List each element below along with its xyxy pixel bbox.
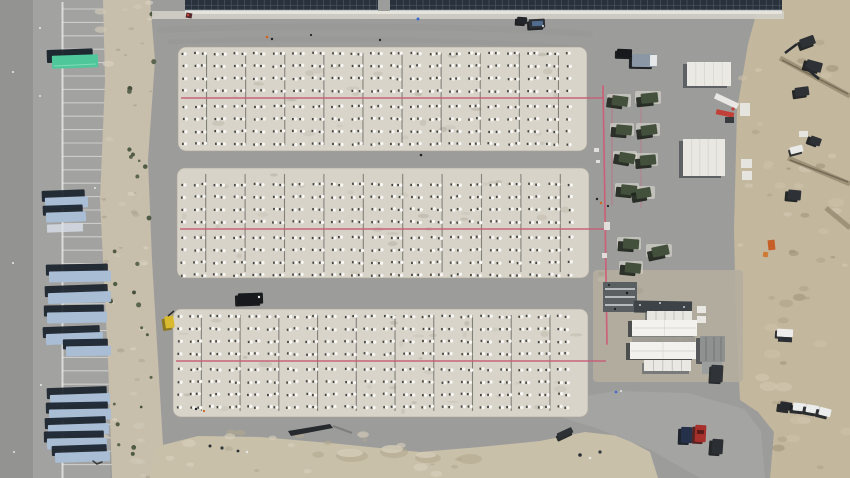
foundation-pad-row-2-pier — [361, 195, 364, 198]
foundation-pad-row-2-pier — [497, 220, 500, 223]
foundation-pad-row-1-pier — [419, 105, 422, 108]
foundation-pad-row-2-pier — [183, 248, 186, 251]
foundation-pad-row-1-pier — [294, 117, 297, 120]
foundation-pad-row-3-pier — [353, 392, 356, 395]
foundation-pad-row-2-pier — [183, 220, 186, 223]
foundation-pad-row-3-pier — [392, 380, 395, 383]
yellow-forklift — [164, 315, 175, 328]
foundation-pad-row-1-pier — [313, 129, 316, 132]
foundation-pad-row-1-pier — [509, 52, 512, 55]
foundation-pad-row-2-pier — [261, 273, 264, 276]
foundation-pad-row-1-pier — [340, 118, 343, 121]
foundation-pad-row-3-pier — [521, 328, 524, 331]
foundation-pad-row-1-pier — [489, 105, 492, 108]
right-dirt-light — [828, 198, 844, 207]
foundation-pad-row-3-pier — [412, 393, 415, 396]
right-dirt-dark — [789, 250, 796, 254]
right-dirt-dark — [817, 465, 824, 469]
foundation-pad-row-2-pier — [381, 235, 384, 238]
foundation-pad-row-1-pier — [470, 118, 473, 121]
foundation-pad-row-3-pier — [508, 339, 511, 342]
storage-container — [47, 311, 107, 323]
dirt-strip-light-patches — [123, 8, 128, 11]
foundation-pad-row-1-pier — [438, 130, 441, 133]
foundation-pad-row-2-pier — [321, 195, 324, 198]
foundation-pad-row-1-pier — [549, 77, 552, 80]
foundation-pad-row-3-pier — [347, 315, 350, 318]
foundation-pad-row-2-pier — [223, 261, 226, 264]
foundation-pad-row-2-pier — [354, 182, 357, 185]
foundation-pad-row-2-pier — [275, 236, 278, 239]
shrubs — [113, 282, 117, 286]
worker-dot — [266, 36, 269, 39]
foundation-pad-row-2-stain — [270, 173, 278, 176]
dirt-strip-light-patches — [105, 137, 113, 142]
foundation-pad-row-2-pier — [419, 183, 422, 186]
foundation-pad-row-1-pier — [360, 76, 363, 79]
foundation-pad-row-2-pier — [511, 235, 514, 238]
right-dirt-light — [755, 374, 769, 382]
foundation-pad-row-3-pier — [430, 380, 433, 383]
foundation-pad-row-3-pier — [230, 339, 233, 342]
foundation-pad-row-1-pier — [380, 117, 383, 120]
foundation-pad-row-1-pier — [569, 105, 572, 108]
foundation-pad-row-2-pier — [340, 220, 343, 223]
foundation-pad-row-2-pier — [341, 273, 344, 276]
foundation-pad-row-2-pier — [557, 248, 560, 251]
foundation-pad-row-2-pier — [458, 195, 461, 198]
foundation-pad-row-3-pier — [256, 368, 259, 371]
foundation-pad-row-2-pier — [400, 274, 403, 277]
foundation-pad-row-1-pier — [217, 142, 220, 145]
foundation-pad-row-2-pier — [203, 182, 206, 185]
foundation-pad-row-2-pier — [557, 274, 560, 277]
ground-equipment — [578, 453, 582, 457]
foundation-pad-row-2-pier — [412, 220, 415, 223]
foundation-pad-row-1-pier — [529, 130, 532, 133]
foundation-pad-row-1-pier — [477, 52, 480, 55]
foundation-pad-row-1-pier — [275, 104, 278, 107]
foundation-pad-row-1-pier — [314, 89, 317, 92]
foundation-pad-row-2-pier — [255, 195, 258, 198]
dirt-strip-dark-patches — [139, 359, 145, 362]
foundation-pad-row-2-pier — [275, 248, 278, 251]
foundation-pad-row-1-pier — [340, 130, 343, 133]
foundation-pad-row-3-pier — [210, 380, 213, 383]
foundation-pad-row-3-pier — [269, 393, 272, 396]
foundation-pad-row-2-pier — [183, 183, 186, 186]
foundation-pad-row-3-pier — [463, 380, 466, 383]
foundation-pad-row-3-stain — [259, 361, 273, 367]
foundation-pad-row-1-pier — [392, 142, 395, 145]
foundation-pad-row-3-pier — [211, 352, 214, 355]
foundation-pad-row-3-pier — [353, 353, 356, 356]
foundation-pad-row-3-pier — [470, 368, 473, 371]
foundation-pad-row-1-pier — [352, 76, 355, 79]
foundation-pad-row-3-pier — [540, 380, 543, 383]
foundation-pad-row-2-pier — [452, 196, 455, 199]
foundation-pad-row-1-pier — [302, 142, 305, 145]
foundation-pad-row-1-pier — [373, 117, 376, 120]
foundation-pad-row-1-pier — [438, 64, 441, 67]
foundation-pad-row-3-pier — [198, 392, 201, 395]
foundation-pad-row-2-pier — [459, 273, 462, 276]
skid-details — [614, 308, 616, 310]
foundation-pad-row-2-pier — [459, 183, 462, 186]
foundation-pad-row-1-pier — [275, 117, 278, 120]
foundation-pad-row-3-pier — [327, 406, 330, 409]
dirt-mound-highlight — [416, 452, 436, 458]
foundation-pad-row-3-pier — [231, 406, 234, 409]
red-car-windshield — [697, 430, 704, 434]
foundation-pad-row-2-pier — [302, 248, 305, 251]
foundation-pad-row-2-pier — [195, 273, 198, 276]
foundation-pad-row-2-stain — [483, 182, 487, 186]
foundation-pad-row-2-pier — [537, 208, 540, 211]
foundation-pad-row-2-pier — [518, 261, 521, 264]
foundation-pad-row-1-pier — [262, 142, 265, 145]
foundation-pad-row-2-pier — [491, 183, 494, 186]
foundation-pad-row-2-pier — [255, 182, 258, 185]
equipment-yard-texture — [597, 277, 606, 282]
foundation-pad-row-3-pier — [231, 380, 234, 383]
foundation-pad-row-3-pier — [179, 315, 182, 318]
foundation-pad-row-2-pier — [479, 274, 482, 277]
foundation-pad-row-3-pier — [192, 340, 195, 343]
foundation-pad-row-1-pier — [340, 90, 343, 93]
foundation-pad-row-2-pier — [255, 208, 258, 211]
foundation-pad-row-3-pier — [546, 393, 549, 396]
foundation-pad-row-1-pier — [301, 117, 304, 120]
foundation-pad-row-2-pier — [557, 196, 560, 199]
foundation-pad-row-2-pier — [452, 274, 455, 277]
right-dirt-dark — [826, 65, 838, 72]
foundation-pad-row-1-pier — [353, 64, 356, 67]
foundation-pad-row-1-pier — [242, 89, 245, 92]
foundation-pad-row-1-pier — [352, 52, 355, 55]
foundation-pad-row-1-pier — [548, 105, 551, 108]
foundation-pad-row-1-pier — [529, 89, 532, 92]
foundation-pad-row-3-pier — [257, 315, 260, 318]
foundation-pad-row-3-pier — [520, 392, 523, 395]
foundation-pad-row-3-pier — [463, 328, 466, 331]
foundation-pad-row-1-pier — [235, 105, 238, 108]
foundation-pad-row-2-pier — [282, 248, 285, 251]
right-dirt-dark — [777, 436, 787, 441]
foundation-pad-row-1-pier — [516, 129, 519, 132]
foundation-pad-row-1-pier — [497, 104, 500, 107]
foundation-pad-row-2-pier — [530, 196, 533, 199]
foundation-pad-row-3-pier — [354, 314, 357, 317]
foundation-pad-row-1-pier — [262, 64, 265, 67]
foundation-pad-row-3-stain — [464, 321, 469, 327]
foundation-pad-row-1-pier — [450, 105, 453, 108]
shrubs — [146, 333, 149, 336]
foundation-pad-row-3-pier — [481, 367, 484, 370]
foundation-pad-row-3-pier — [451, 393, 454, 396]
foundation-pad-row-3-pier — [528, 327, 531, 330]
foundation-pad-row-2-pier — [393, 220, 396, 223]
foundation-pad-row-1-pier — [548, 142, 551, 145]
dirt-strip-dark-patches — [135, 378, 140, 381]
foundation-pad-row-2-pier — [379, 220, 382, 223]
foundation-pad-row-2-pier — [571, 208, 574, 211]
foundation-pad-row-3-pier — [326, 353, 329, 356]
foundation-pad-row-3-pier — [411, 352, 414, 355]
foundation-pad-row-1-pier — [262, 89, 265, 92]
foundation-pad-row-2-pier — [478, 235, 481, 238]
foundation-pad-row-3-pier — [385, 380, 388, 383]
foundation-pad-row-2-pier — [275, 195, 278, 198]
foundation-pad-row-2-pier — [498, 208, 501, 211]
foundation-pad-row-1-pier — [184, 77, 187, 80]
suv-north — [517, 17, 527, 25]
foundation-pad-row-1-pier — [556, 77, 559, 80]
foundation-pad-row-3-pier — [501, 393, 504, 396]
foundation-pad-row-3-pier — [444, 352, 447, 355]
dirt-strip-light-patches — [112, 418, 118, 421]
foundation-pad-row-2-pier — [254, 273, 257, 276]
right-dirt-light — [783, 212, 791, 217]
foundation-pad-row-2-pier — [531, 248, 534, 251]
foundation-pad-row-1-pier — [400, 89, 403, 92]
foundation-pad-row-2-pier — [261, 196, 264, 199]
foundation-pad-row-1-pier — [392, 64, 395, 67]
foundation-pad-row-3-pier — [308, 380, 311, 383]
foundation-pad-row-3-pier — [333, 405, 336, 408]
foundation-pad-row-1-pier — [215, 64, 218, 67]
foundation-pad-row-1-stain — [212, 121, 224, 127]
foundation-pad-row-3-pier — [366, 380, 369, 383]
foundation-pad-row-1-pier — [372, 64, 375, 67]
foundation-pad-row-1-pier — [255, 64, 258, 67]
foundation-pad-row-2-pier — [215, 221, 218, 224]
foundation-pad-row-2-pier — [202, 260, 205, 263]
foundation-pad-row-3-pier — [547, 368, 550, 371]
hvac-unit-row-top — [647, 311, 692, 320]
foundation-pad-row-3-pier — [384, 340, 387, 343]
foundation-pad-row-2-pier — [459, 249, 462, 252]
foundation-pad-row-1-pier — [223, 117, 226, 120]
right-dirt-light — [814, 340, 827, 347]
foundation-pad-row-1-pier — [203, 130, 206, 133]
foundation-pad-row-3-stain — [419, 357, 423, 359]
foundation-pad-row-1-pier — [437, 117, 440, 120]
foundation-pad-row-1-pier — [262, 105, 265, 108]
dirt-strip-dark-patches — [133, 104, 137, 106]
foundation-pad-row-3-pier — [442, 368, 445, 371]
foundation-pad-row-1-pier — [548, 129, 551, 132]
foundation-pad-row-3-pier — [218, 314, 221, 317]
foundation-pad-row-2-pier — [511, 221, 514, 224]
foundation-pad-row-2-pier — [400, 195, 403, 198]
foundation-pad-row-2-pier — [538, 274, 541, 277]
dirt-strip-dark-patches — [102, 198, 107, 200]
foundation-pad-row-1-pier — [255, 89, 258, 92]
bottom-dirt-texture — [430, 463, 434, 465]
foundation-pad-row-3-pier — [424, 339, 427, 342]
foundation-pad-row-3-pier — [412, 328, 415, 331]
foundation-pad-row-2-pier — [361, 249, 364, 252]
foundation-pad-row-3-pier — [521, 381, 524, 384]
foundation-pad-row-3-pier — [392, 393, 395, 396]
foundation-pad-row-2-pier — [538, 221, 541, 224]
foundation-pad-row-2-pier — [373, 207, 376, 210]
foundation-pad-row-2-pier — [380, 248, 383, 251]
foundation-pad-row-1-pier — [438, 76, 441, 79]
foundation-pad-row-1-pier — [392, 105, 395, 108]
foundation-pad-row-1-pier — [510, 130, 513, 133]
foundation-pad-row-1-pier — [333, 105, 336, 108]
foundation-pad-row-3-pier — [373, 328, 376, 331]
foundation-pad-row-1-pier — [334, 52, 337, 55]
foundation-pad-row-1-pier — [341, 52, 344, 55]
foundation-pad-row-3-pier — [541, 393, 544, 396]
foundation-pad-row-3-pier — [423, 315, 426, 318]
foundation-pad-row-1-pier — [302, 130, 305, 133]
foundation-pad-row-2-pier — [550, 207, 553, 210]
foundation-pad-row-3-pier — [566, 328, 569, 331]
foundation-pad-row-1-pier — [392, 90, 395, 93]
foundation-pad-row-3-pier — [444, 405, 447, 408]
foundation-pad-row-2-pier — [182, 261, 185, 264]
foundation-pad-row-1-pier — [236, 76, 239, 79]
foundation-pad-row-3-pier — [198, 367, 201, 370]
foundation-pad-row-2-pier — [550, 260, 553, 263]
dark-van-east — [711, 365, 724, 383]
foundation-pad-row-2-pier — [274, 274, 277, 277]
foundation-pad-row-1-pier — [353, 89, 356, 92]
foundation-pad-row-2-pier — [183, 236, 186, 239]
bottom-dirt-texture — [269, 436, 277, 440]
foundation-pad-row-1-pier — [477, 142, 480, 145]
foundation-pad-row-1-pier — [470, 51, 473, 54]
foundation-pad-row-2-pier — [478, 207, 481, 210]
foundation-pad-row-3-pier — [501, 327, 504, 330]
foundation-pad-row-1-pier — [263, 117, 266, 120]
foundation-pad-row-3-pier — [559, 367, 562, 370]
foundation-pad-row-1-pier — [333, 64, 336, 67]
foundation-pad-row-2-pier — [452, 235, 455, 238]
foundation-pad-row-1-pier — [451, 90, 454, 93]
foundation-pad-row-2-pier — [412, 207, 415, 210]
foundation-pad-row-1-pier — [320, 142, 323, 145]
foundation-pad-row-2-pier — [222, 196, 225, 199]
foundation-pad-row-2-pier — [360, 262, 363, 265]
foundation-pad-row-3-stain — [367, 385, 372, 389]
foundation-pad-row-3-pier — [404, 380, 407, 383]
skid-details — [608, 284, 610, 286]
foundation-pad-row-3-pier — [547, 340, 550, 343]
foundation-pad-row-1-pier — [536, 117, 539, 120]
foundation-pad-row-2-pier — [222, 183, 225, 186]
foundation-pad-row-1-stain — [543, 68, 553, 74]
foundation-pad-row-2-pier — [320, 236, 323, 239]
foundation-pad-row-2-pier — [550, 221, 553, 224]
foundation-pad-row-3-pier — [307, 340, 310, 343]
foundation-pad-row-2-pier — [458, 261, 461, 264]
foundation-pad-row-1-pier — [476, 104, 479, 107]
foundation-pad-row-3-pier — [489, 380, 492, 383]
right-dirt-dark — [830, 256, 835, 259]
shrubs — [143, 164, 148, 169]
dirt-strip-dark-patches — [117, 348, 124, 352]
worker-dot — [420, 154, 423, 157]
foundation-pad-row-2-pier — [202, 236, 205, 239]
ground-equipment — [620, 390, 622, 392]
foundation-pad-row-3-pier — [527, 339, 530, 342]
right-dirt-dark — [752, 130, 760, 134]
foundation-pad-row-3-pier — [431, 405, 434, 408]
foundation-pad-row-1-pier — [418, 64, 421, 67]
foundation-pad-row-3-pier — [385, 353, 388, 356]
foundation-pad-row-2-pier — [255, 261, 258, 264]
foundation-pad-row-2-pier — [215, 273, 218, 276]
foundation-pad-row-2-pier — [510, 196, 513, 199]
foundation-pad-row-1-pier — [398, 78, 401, 81]
foundation-pad-row-2-pier — [531, 260, 534, 263]
foundation-pad-row-2-pier — [399, 236, 402, 239]
foundation-pad-row-1-pier — [321, 65, 324, 68]
foundation-pad-row-2-pier — [222, 208, 225, 211]
foundation-pad-row-2-pier — [472, 236, 475, 239]
dirt-mound — [458, 454, 482, 464]
foundation-pad-row-3-pier — [179, 393, 182, 396]
foundation-pad-row-2-pier — [440, 273, 443, 276]
foundation-pad-row-1-pier — [516, 77, 519, 80]
foundation-pad-row-3-pier — [199, 406, 202, 409]
foundation-pad-row-2-pier — [300, 261, 303, 264]
foundation-pad-row-1-pier — [197, 142, 200, 145]
foundation-pad-row-3-pier — [405, 393, 408, 396]
shrubs — [127, 147, 131, 151]
right-dirt-dark — [767, 194, 772, 197]
foundation-pad-row-1-pier — [282, 129, 285, 132]
foundation-pad-row-3-pier — [179, 406, 182, 409]
foundation-pad-row-3-pier — [326, 340, 329, 343]
foundation-pad-row-3-pier — [237, 328, 240, 331]
foundation-pad-row-3-pier — [392, 368, 395, 371]
foundation-pad-row-1-pier — [294, 64, 297, 67]
foundation-pad-row-2-pier — [196, 249, 199, 252]
truck-north-load — [532, 21, 543, 27]
foundation-pad-row-1-pier — [196, 118, 199, 121]
foundation-pad-row-2-stain — [182, 213, 187, 219]
foundation-pad-row-3-pier — [218, 352, 221, 355]
utility-shed — [604, 222, 610, 230]
foundation-pad-row-3-pier — [346, 352, 349, 355]
dirt-strip-light-patches — [103, 61, 114, 67]
foundation-pad-row-1-pier — [509, 106, 512, 109]
foundation-pad-row-1-pier — [262, 130, 265, 133]
foundation-pad-row-3-pier — [314, 380, 317, 383]
white-equipment-box — [697, 306, 706, 313]
foundation-pad-row-2-pier — [570, 248, 573, 251]
foundation-pad-row-2-pier — [393, 260, 396, 263]
foundation-pad-row-3-pier — [295, 380, 298, 383]
dark-blue-car — [681, 427, 693, 443]
dark-van-south — [711, 439, 723, 455]
foundation-pad-row-3-pier — [469, 392, 472, 395]
foundation-pad-row-2-pier — [432, 235, 435, 238]
foundation-pad-row-2-pier — [261, 236, 264, 239]
foundation-pad-row-3-pier — [469, 328, 472, 331]
foundation-pad-row-1-pier — [333, 76, 336, 79]
pavement-markers — [39, 27, 41, 29]
foundation-pad-row-2-pier — [353, 208, 356, 211]
foundation-pad-row-3-pier — [482, 339, 485, 342]
foundation-pad-row-2-pier — [215, 249, 218, 252]
